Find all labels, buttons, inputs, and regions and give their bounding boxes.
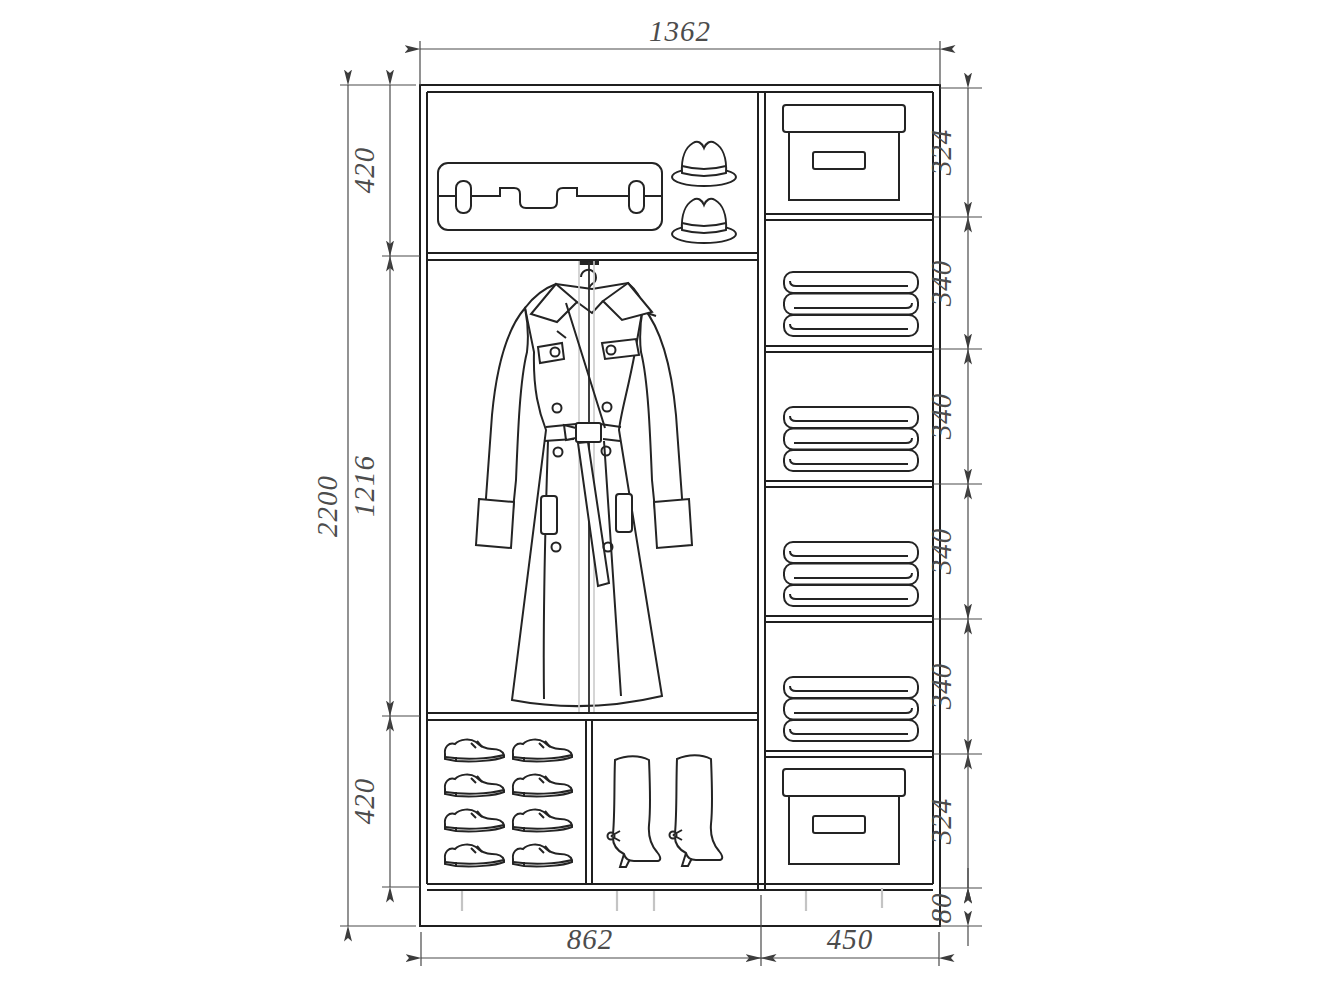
- left-bottom-shelf: [427, 713, 758, 720]
- dim-total-width-group: 1362: [420, 15, 940, 85]
- dim-bottom-group: 862 450: [421, 895, 939, 966]
- right-shelf-5: [765, 751, 933, 757]
- dim-total-width: 1362: [649, 15, 711, 47]
- left-top-shelf: [427, 253, 758, 260]
- shoe-icon: [445, 810, 504, 832]
- shoe-icon: [445, 775, 504, 797]
- dim-right-6: 324: [925, 798, 957, 846]
- dim-right-2: 340: [925, 260, 957, 308]
- dim-left-top: 420: [348, 147, 380, 194]
- trench-coat-icon: [476, 283, 692, 706]
- shoe-icon: [445, 740, 504, 762]
- shoe-icon: [513, 775, 572, 797]
- folded-linen-icon: [784, 677, 918, 741]
- right-shelf-2: [765, 346, 933, 352]
- dim-right-plinth: 80: [925, 893, 957, 924]
- dim-bottom-right-width: 450: [827, 923, 874, 955]
- folded-linen-icon: [784, 407, 918, 471]
- blueprint-page: 1362 2200 420 1216 420 324 340 340 340 3…: [0, 0, 1333, 1000]
- boots-pair: [608, 755, 723, 867]
- suitcase-icon: [438, 163, 662, 230]
- hat-icon: [672, 199, 736, 243]
- storage-box-icon: [783, 105, 905, 200]
- plinth-feet: [462, 888, 882, 911]
- shoes-grid: [445, 740, 572, 867]
- boot-icon: [608, 756, 661, 867]
- dim-left-chain-group: 420 1216 420: [348, 85, 420, 887]
- shoe-icon: [513, 810, 572, 832]
- shoe-icon: [513, 740, 572, 762]
- shoe-icon: [513, 845, 572, 867]
- dim-total-height: 2200: [311, 475, 343, 537]
- dim-left-bottom: 420: [348, 778, 380, 825]
- right-shelf-3: [765, 481, 933, 487]
- wardrobe-technical-drawing: 1362 2200 420 1216 420 324 340 340 340 3…: [0, 0, 1333, 1000]
- bottom-panel: [427, 884, 933, 890]
- dim-right-5: 340: [925, 663, 957, 711]
- dim-left-middle: 1216: [348, 455, 380, 517]
- dim-right-1: 324: [925, 129, 957, 177]
- storage-box-icon: [783, 769, 905, 864]
- dim-bottom-left-width: 862: [567, 923, 614, 955]
- shoe-section-divider: [586, 720, 592, 884]
- hat-icon: [672, 142, 736, 186]
- right-shelf-4: [765, 616, 933, 622]
- center-divider: [758, 92, 765, 890]
- folded-linen-icon: [784, 272, 918, 336]
- right-shelf-1: [765, 214, 933, 220]
- dim-right-4: 340: [925, 528, 957, 576]
- shoe-icon: [445, 845, 504, 867]
- boot-icon: [670, 755, 723, 866]
- folded-linen-icon: [784, 542, 918, 606]
- dim-right-3: 340: [925, 393, 957, 441]
